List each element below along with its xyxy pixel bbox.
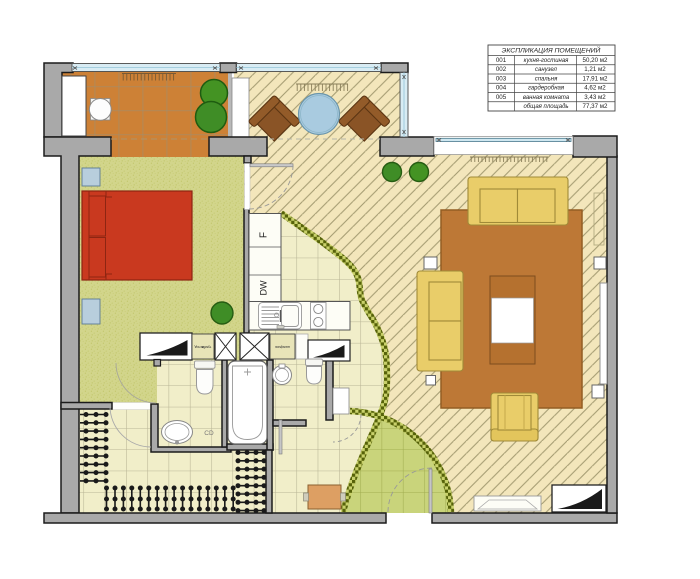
svg-text:001: 001 xyxy=(496,57,507,64)
svg-text:005: 005 xyxy=(496,94,507,101)
svg-text:4,62 м2: 4,62 м2 xyxy=(584,85,606,92)
svg-text:1,21 м2: 1,21 м2 xyxy=(584,66,606,73)
svg-text:ванная комната: ванная комната xyxy=(523,95,570,101)
svg-text:шкафчик: шкафчик xyxy=(275,345,290,349)
svg-text:DW: DW xyxy=(258,280,268,295)
svg-text:003: 003 xyxy=(496,75,507,82)
svg-text:F: F xyxy=(259,232,270,238)
svg-text:спальня: спальня xyxy=(535,76,558,82)
svg-text:77,37 м2: 77,37 м2 xyxy=(583,103,608,110)
svg-text:004: 004 xyxy=(496,85,507,92)
svg-text:CD: CD xyxy=(204,430,214,437)
svg-text:санузел: санузел xyxy=(535,67,557,73)
svg-text:тв: тв xyxy=(201,345,205,349)
svg-text:ЭКСПЛИКАЦИЯ ПОМЕЩЕНИЙ: ЭКСПЛИКАЦИЯ ПОМЕЩЕНИЙ xyxy=(502,46,601,55)
svg-text:гардеробная: гардеробная xyxy=(528,86,565,92)
svg-text:002: 002 xyxy=(496,66,507,73)
svg-text:50,20 м2: 50,20 м2 xyxy=(583,57,608,64)
svg-text:общая площадь: общая площадь xyxy=(523,104,568,110)
svg-text:3,43 м2: 3,43 м2 xyxy=(584,94,606,101)
svg-text:17,91 м2: 17,91 м2 xyxy=(583,75,608,82)
svg-text:кухня-гостиная: кухня-гостиная xyxy=(524,58,570,64)
